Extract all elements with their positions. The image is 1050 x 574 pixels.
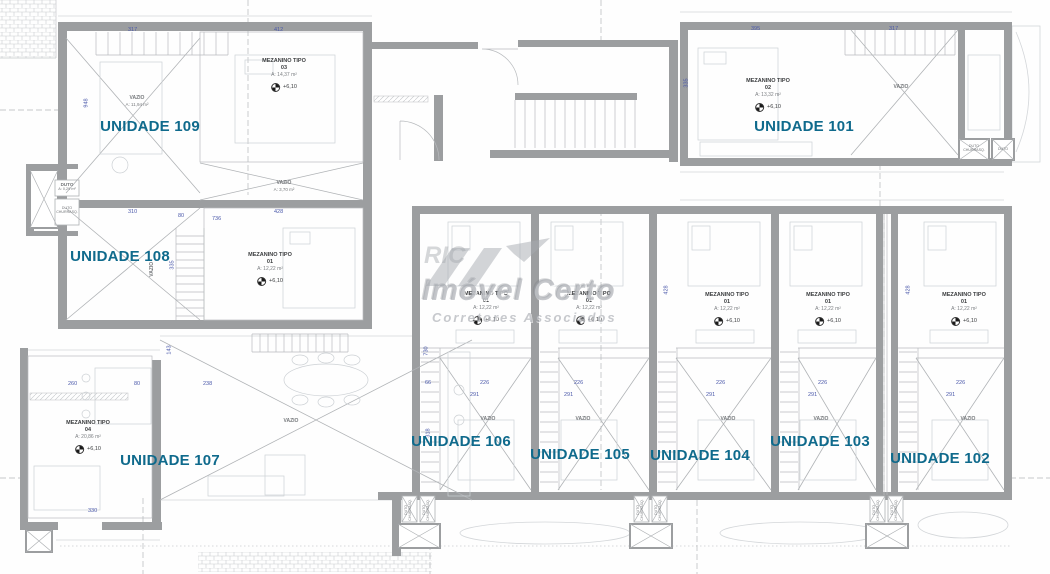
dimension: 428 <box>906 285 912 294</box>
dimension: 80 <box>134 381 140 387</box>
mezzanine-label-01-u104: MEZANINO TIPO 01 A: 12,22 m² +6,10 <box>705 292 749 326</box>
dimension: 80 <box>178 213 184 219</box>
dimension: 428 <box>664 285 670 294</box>
dimension: 260 <box>68 381 77 387</box>
mezzanine-label-01-u103: MEZANINO TIPO 01 A: 12,22 m² +6,10 <box>806 292 850 326</box>
dimension: 291 <box>564 392 573 398</box>
dimension: 143 <box>167 345 173 354</box>
dimension: 428 <box>274 209 283 215</box>
duct-label-churrasq-rotated: DUTO CHURRASQ. <box>405 497 413 523</box>
void-label: VAZIO A: 3,70 m² <box>274 180 295 192</box>
dimension: 66 <box>425 380 431 386</box>
level-marker-icon <box>271 83 280 92</box>
void-label: VAZIO <box>481 416 496 423</box>
level-marker-icon <box>75 445 84 454</box>
dimension: 310 <box>128 209 137 215</box>
level-marker-icon <box>257 277 266 286</box>
duct-label-duto: DUTO <box>998 147 1008 151</box>
unit-label-108: UNIDADE 108 <box>70 248 170 265</box>
dimension: 330 <box>88 508 97 514</box>
duct-label-churrasq-rotated: DUTO CHURRASQ. <box>423 497 431 523</box>
duct-label-churrasq: DUTO CHURRASQ. <box>56 206 78 214</box>
door-arcs <box>400 49 518 160</box>
unit-label-102: UNIDADE 102 <box>890 450 990 467</box>
mezzanine-label-01-u108: MEZANINO TIPO 01 A: 12,22 m² +6,10 <box>248 252 292 286</box>
void-label: VAZIO <box>814 416 829 423</box>
plan-linework <box>0 0 1050 574</box>
unit-label-105: UNIDADE 105 <box>530 446 630 463</box>
duct-label-duto: DUTO A: 0,29 m² <box>58 182 76 192</box>
unit-label-101: UNIDADE 101 <box>754 118 854 135</box>
duct-label-churrasq-rotated: DUTO CHURRASQ. <box>655 497 663 523</box>
unit-label-106: UNIDADE 106 <box>411 433 511 450</box>
dimension: 238 <box>203 381 212 387</box>
mezzanine-label-01-u102: MEZANINO TIPO 01 A: 12,22 m² +6,10 <box>942 292 986 326</box>
walls <box>20 22 1012 556</box>
level-marker-icon <box>815 317 824 326</box>
dimension: 291 <box>706 392 715 398</box>
dimension: 317 <box>889 26 898 32</box>
mezzanine-label-04: MEZANINO TIPO 04 A: 20,86 m² +6,10 <box>66 420 110 454</box>
level-marker-icon <box>714 317 723 326</box>
unit-label-107: UNIDADE 107 <box>120 452 220 469</box>
unit-label-103: UNIDADE 103 <box>770 433 870 450</box>
dimension: 226 <box>956 380 965 386</box>
duct-label-churrasq-rotated: DUTO CHURRASQ. <box>891 497 899 523</box>
void-label: VAZIO <box>894 84 909 91</box>
dimension: 226 <box>480 380 489 386</box>
dimension: 730 <box>424 346 430 355</box>
unit-label-104: UNIDADE 104 <box>650 447 750 464</box>
dimension: 291 <box>808 392 817 398</box>
mezzanine-label-01-u106: MEZANINO TIPO 01 A: 12,22 m² +6,10 <box>464 291 508 325</box>
mezzanine-label-03: MEZANINO TIPO 03 A: 14,37 m² +6,10 <box>262 58 306 92</box>
dimension: 395 <box>751 26 760 32</box>
void-label: VAZIO <box>961 416 976 423</box>
duct-label-churrasq: DUTO CHURRASQ. <box>963 144 985 152</box>
dimension: 226 <box>716 380 725 386</box>
unit-label-109: UNIDADE 109 <box>100 118 200 135</box>
dimension: 317 <box>128 27 137 33</box>
dimension: 335 <box>684 78 690 87</box>
duct-label-churrasq-rotated: DUTO CHURRASQ. <box>873 497 881 523</box>
dimension: 335 <box>170 260 176 269</box>
dimension: 226 <box>818 380 827 386</box>
floorplan: UNIDADE 109 UNIDADE 108 UNIDADE 107 UNID… <box>0 0 1050 574</box>
void-label: VAZIO <box>284 418 299 425</box>
void-label: VAZIO <box>576 416 591 423</box>
paving-hatch <box>0 0 56 58</box>
level-marker-icon <box>951 317 960 326</box>
level-marker-icon <box>755 103 764 112</box>
dimension: 412 <box>274 27 283 33</box>
dimension: 291 <box>946 392 955 398</box>
mezzanine-label-01-u105: MEZANINO TIPO 01 A: 12,22 m² +6,10 <box>567 291 611 325</box>
level-marker-icon <box>473 316 482 325</box>
dimension: 736 <box>212 216 221 222</box>
void-label: VAZIO <box>721 416 736 423</box>
level-marker-icon <box>576 316 585 325</box>
dimension: 226 <box>574 380 583 386</box>
void-label: VAZIO A: 11,94 m² <box>126 95 149 107</box>
duct-label-churrasq-rotated: DUTO CHURRASQ. <box>637 497 645 523</box>
mezzanine-label-02: MEZANINO TIPO 02 A: 13,32 m² +6,10 <box>746 78 790 112</box>
dimension: 948 <box>84 98 90 107</box>
dimension: 291 <box>470 392 479 398</box>
